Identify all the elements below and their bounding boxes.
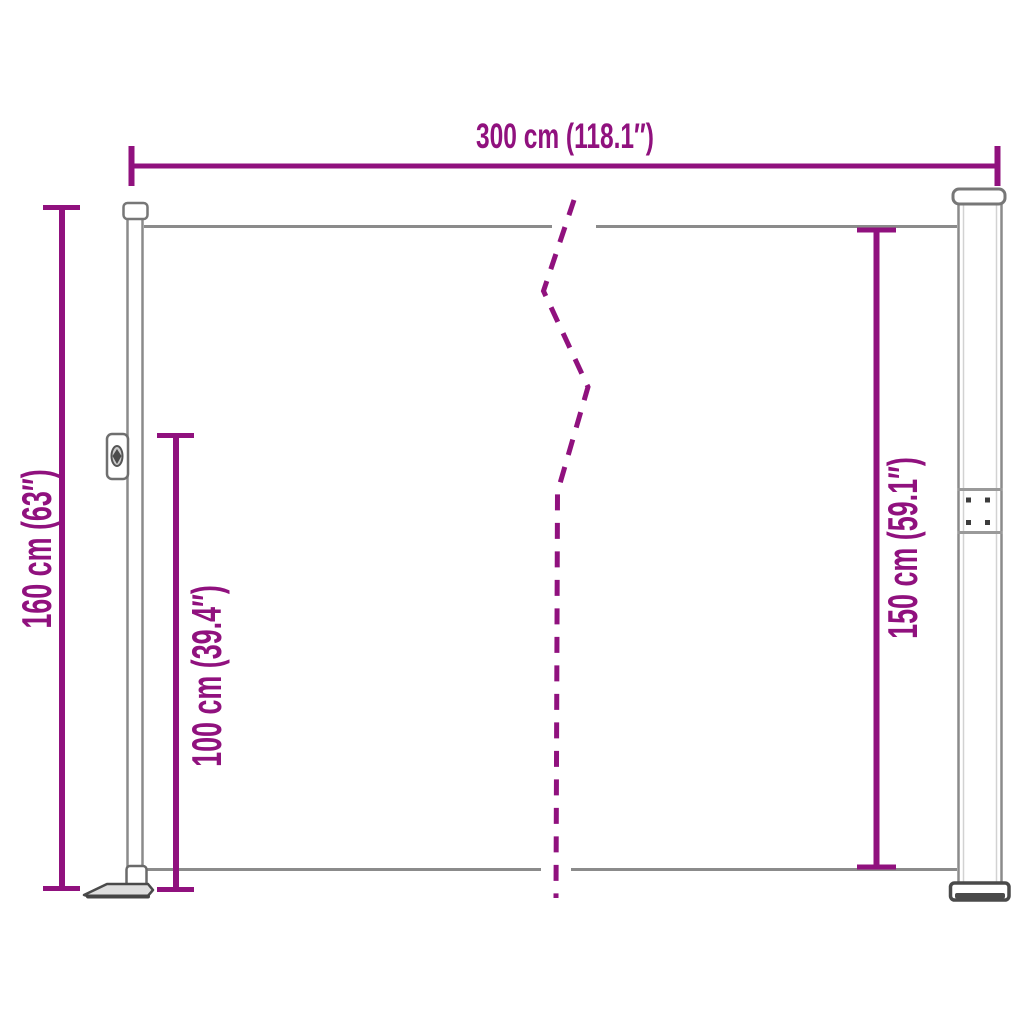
right-post <box>951 189 1010 900</box>
right-post-body <box>959 200 1002 886</box>
left-post-handle <box>107 434 128 479</box>
right-post-cap <box>953 189 1005 204</box>
height-right-dimension-label: 150 cm (59.1″) <box>879 457 927 639</box>
height-total-dimension-label: 160 cm (63″) <box>13 469 61 628</box>
fabric-fold-dashed-line <box>544 200 589 898</box>
dimension-diagram: 300 cm (118.1″) 160 cm (63″) 100 cm (39.… <box>0 0 1024 1024</box>
left-post-foot-plate <box>84 884 153 897</box>
height-inner-dimension-label: 100 cm (39.4″) <box>183 585 231 767</box>
right-post-base <box>951 883 1010 900</box>
left-post-body <box>128 214 143 887</box>
left-post-cap <box>124 203 148 219</box>
left-post <box>84 203 153 897</box>
width-dimension-label: 300 cm (118.1″) <box>425 117 705 157</box>
